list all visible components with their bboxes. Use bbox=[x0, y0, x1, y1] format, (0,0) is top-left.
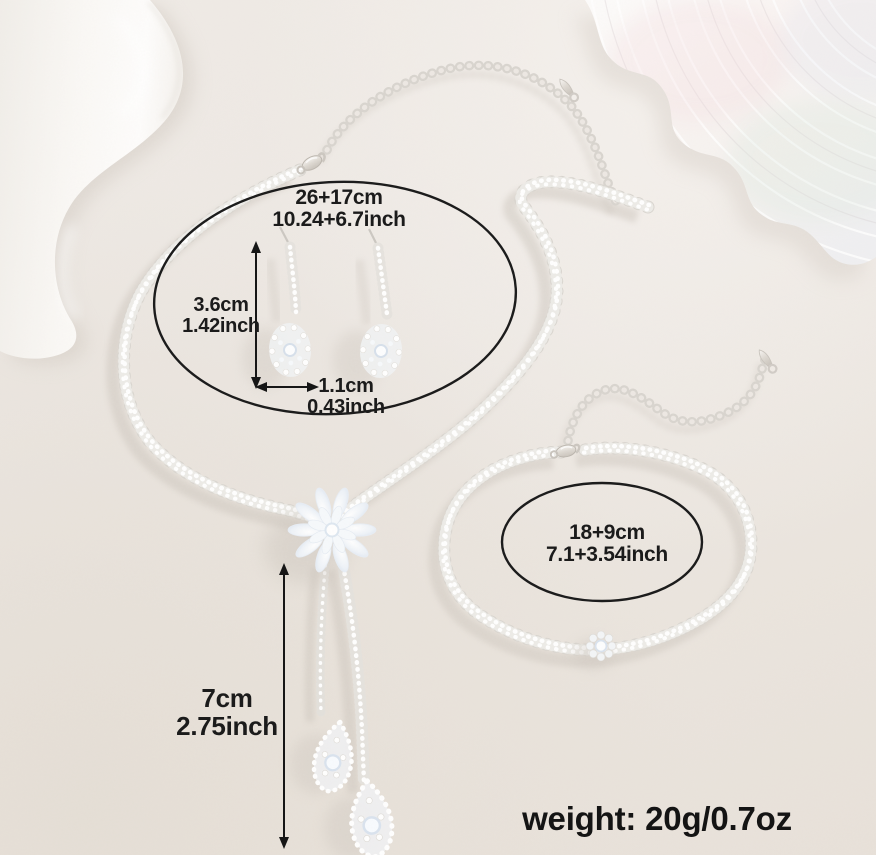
product-photo: 26+17cm 10.24+6.7inch 3.6cm 1.42inch 1.1… bbox=[0, 0, 876, 855]
bracelet-size-label: 18+9cm 7.1+3.54inch bbox=[546, 522, 668, 567]
earring-width-imperial: 0.43inch bbox=[307, 397, 385, 418]
necklace-size-metric: 26+17cm bbox=[272, 187, 405, 209]
earring-height-label: 3.6cm 1.42inch bbox=[182, 295, 260, 338]
earring-height-metric: 3.6cm bbox=[182, 295, 260, 316]
necklace-size-label: 26+17cm 10.24+6.7inch bbox=[272, 187, 405, 232]
earring-width-metric: 1.1cm bbox=[307, 376, 385, 397]
earring-width-label: 1.1cm 0.43inch bbox=[307, 376, 385, 419]
jewelry-scene bbox=[0, 0, 876, 855]
bracelet-size-imperial: 7.1+3.54inch bbox=[546, 544, 668, 566]
weight-label: weight: 20g/0.7oz bbox=[522, 800, 792, 838]
pendant-drop-metric: 7cm bbox=[176, 685, 278, 713]
pendant-drop-imperial: 2.75inch bbox=[176, 713, 278, 741]
paper-texture bbox=[0, 0, 876, 855]
bracelet-size-metric: 18+9cm bbox=[546, 522, 668, 544]
earring-height-imperial: 1.42inch bbox=[182, 316, 260, 337]
necklace-size-imperial: 10.24+6.7inch bbox=[272, 209, 405, 231]
pendant-drop-label: 7cm 2.75inch bbox=[176, 685, 278, 741]
